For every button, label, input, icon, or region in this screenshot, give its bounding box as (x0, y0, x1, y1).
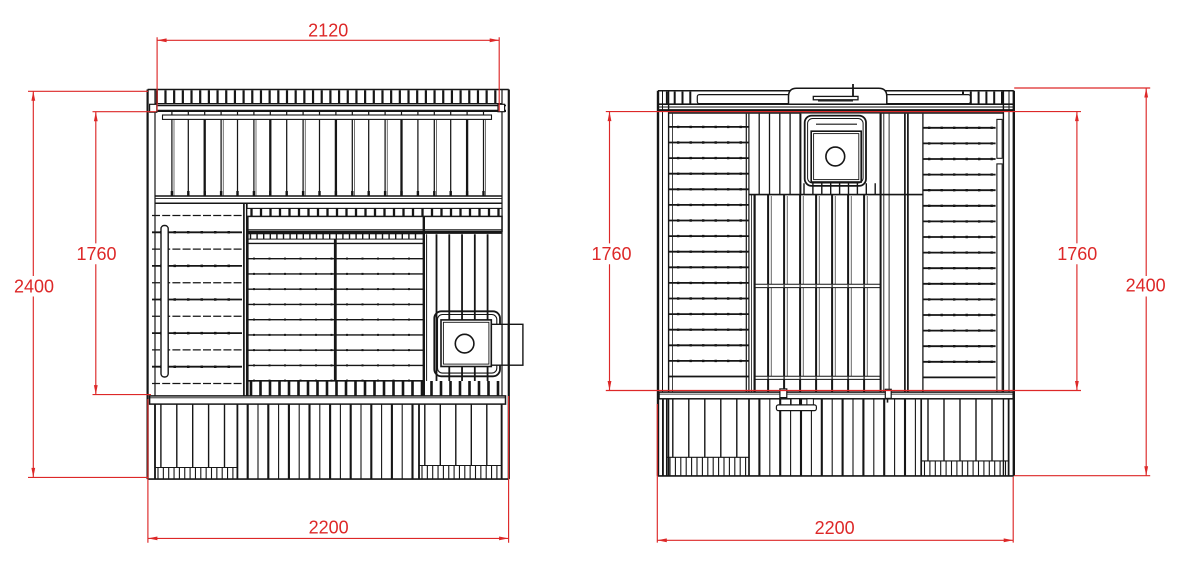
svg-text:2400: 2400 (1126, 276, 1166, 296)
svg-text:1760: 1760 (76, 244, 116, 264)
svg-text:1760: 1760 (1057, 244, 1097, 264)
svg-text:2120: 2120 (308, 20, 348, 40)
svg-text:2200: 2200 (815, 518, 855, 538)
svg-text:2400: 2400 (14, 277, 54, 297)
svg-text:2200: 2200 (309, 518, 349, 538)
svg-text:1760: 1760 (591, 244, 631, 264)
